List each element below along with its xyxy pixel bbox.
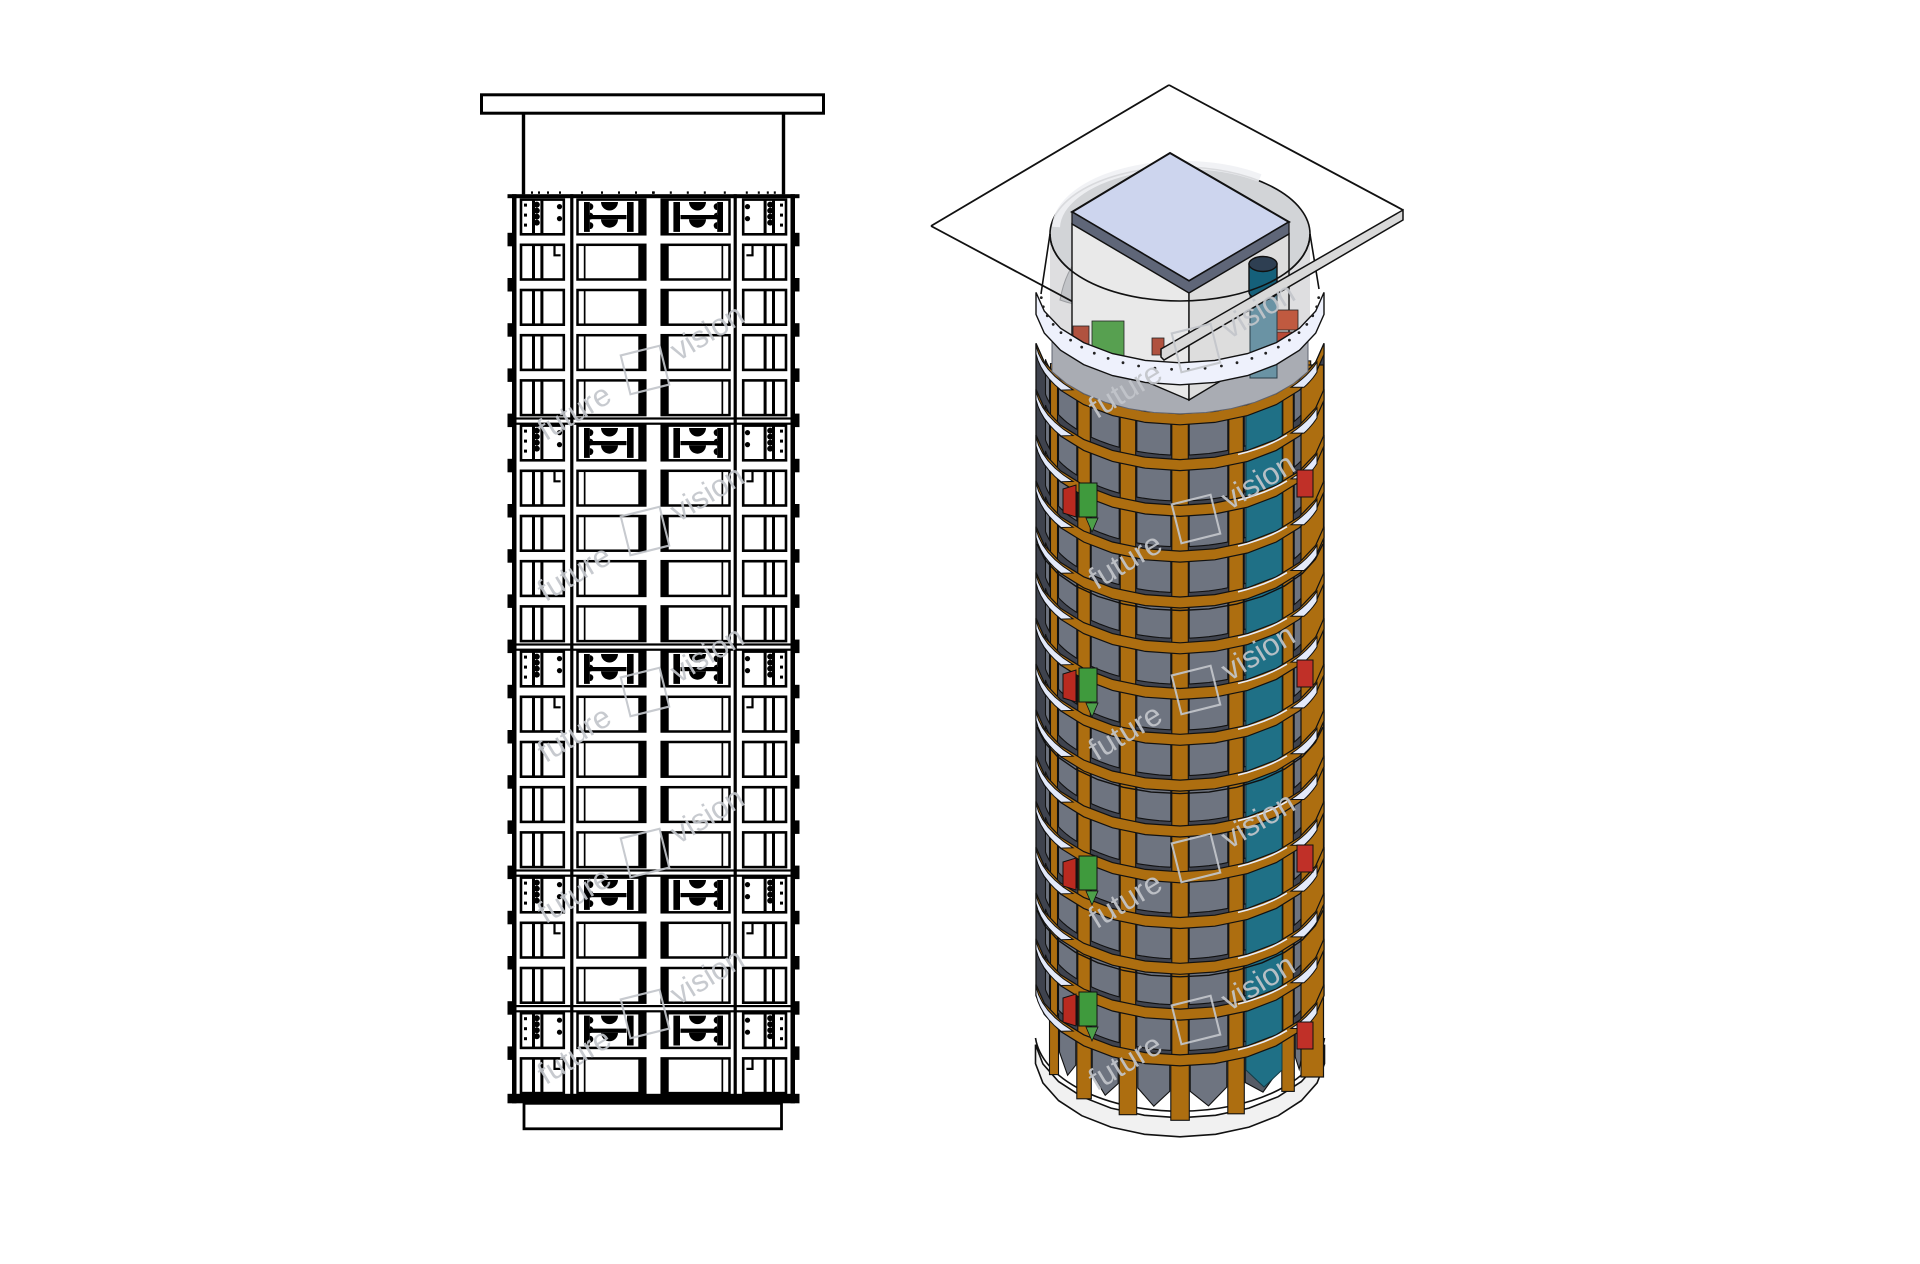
svg-text:vision: vision xyxy=(664,941,750,1012)
svg-text:vision: vision xyxy=(664,780,750,851)
svg-text:vision: vision xyxy=(664,458,750,529)
svg-text:vision: vision xyxy=(664,619,750,690)
svg-text:future: future xyxy=(531,538,617,609)
svg-text:future: future xyxy=(531,699,617,770)
svg-text:vision: vision xyxy=(664,297,750,368)
svg-text:future: future xyxy=(531,1021,617,1092)
svg-text:future: future xyxy=(531,377,617,448)
